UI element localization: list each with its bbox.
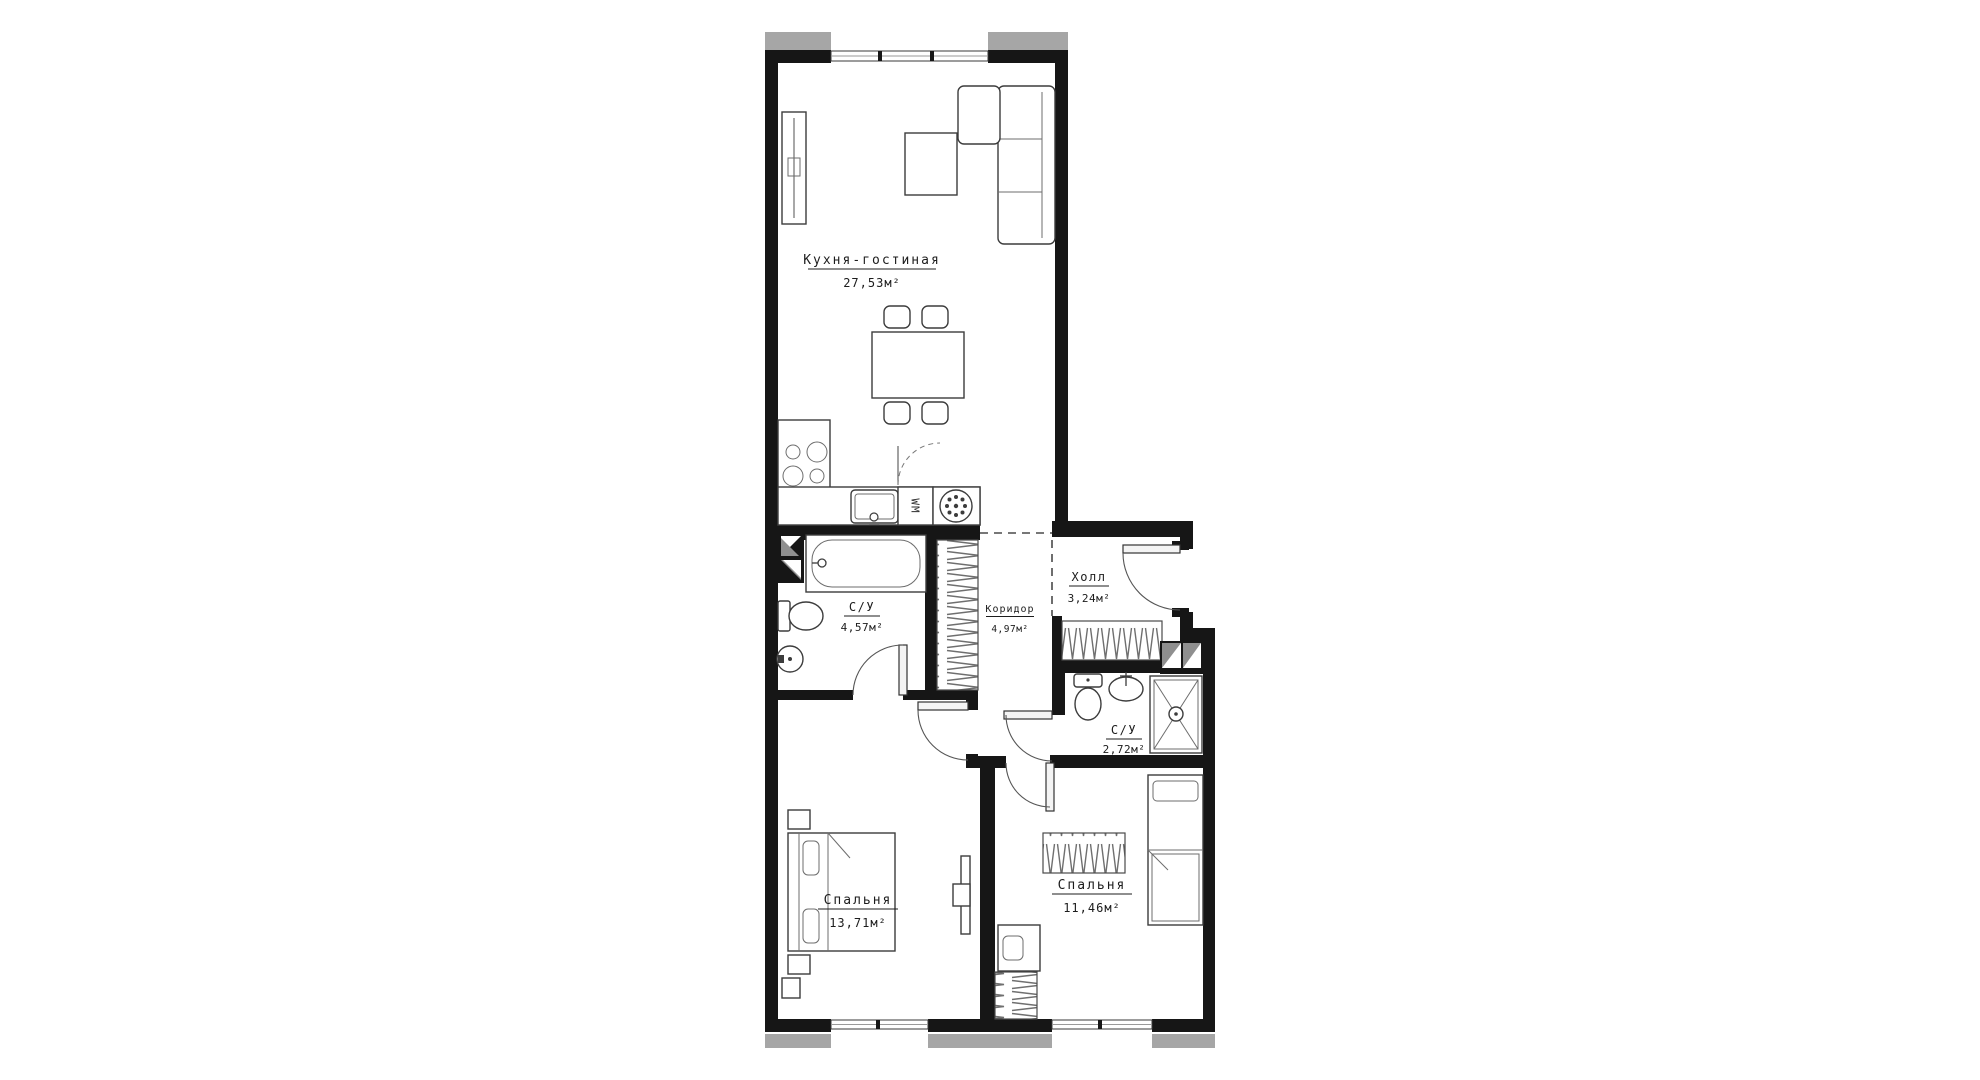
wall-segment (903, 690, 978, 700)
room-area: 4,57м² (841, 621, 884, 634)
room-name: С/У (1111, 723, 1137, 737)
floor-plan: WM (0, 0, 1980, 1080)
sofa-icon (958, 86, 1055, 244)
washing-machine-label: WM (909, 498, 922, 513)
hob-icon (933, 487, 980, 525)
chair-icon (884, 402, 910, 424)
room-area: 3,24м² (1068, 592, 1111, 605)
sink-icon (851, 490, 898, 525)
wall-segment (928, 1019, 1052, 1032)
hall-wardrobe-hatch (1062, 621, 1162, 660)
bathroom1-door (853, 645, 907, 695)
wall-segment (765, 50, 831, 63)
wall-segment (1055, 50, 1068, 525)
bathroom2-door (1004, 711, 1052, 761)
chair-icon (922, 402, 948, 424)
sofa-chaise (958, 86, 1000, 144)
room-label-kitchen: Кухня-гостиная 27,53м² (803, 253, 941, 290)
washbasin-icon (1109, 672, 1143, 701)
coffee-table-icon (905, 133, 957, 195)
bathtub-icon (806, 535, 926, 592)
slab-bottom-left (765, 1034, 831, 1048)
room-name: Кухня-гостиная (803, 253, 941, 268)
room-label-hall: Холл 3,24м² (1068, 570, 1111, 605)
wall-segment (1052, 521, 1193, 537)
wall-segment (1052, 660, 1162, 673)
bathroom2-fixtures (1074, 672, 1202, 753)
corridor-wardrobe-hatch (937, 540, 978, 690)
kitchen-counter: WM (778, 420, 980, 525)
wall-segment (1203, 630, 1215, 1032)
window (831, 51, 988, 61)
slab-bottom-middle (928, 1034, 1052, 1048)
chair-icon (922, 306, 948, 328)
nightstand-icon (788, 955, 810, 974)
room-name: С/У (849, 600, 875, 614)
room-area: 11,46м² (1063, 901, 1121, 915)
bedroom2-door (1006, 763, 1054, 811)
room-name: Коридор (985, 604, 1034, 615)
toilet-icon (1074, 674, 1102, 720)
cabinet-icon (782, 112, 806, 224)
washing-machine-icon: WM (898, 487, 933, 525)
wall-segment (778, 690, 853, 700)
double-bed-icon (788, 833, 895, 951)
bedroom2-wardrobe-hatch (1043, 833, 1125, 873)
kitchen-fixtures: WM (778, 86, 1055, 525)
room-area: 2,72м² (1103, 743, 1146, 756)
room-area: 27,53м² (843, 276, 901, 290)
slab-top-right (988, 32, 1068, 50)
slab-bottom-right (1152, 1034, 1215, 1048)
room-name: Холл (1072, 570, 1107, 584)
slab-top-left (765, 32, 831, 50)
stool-icon (782, 978, 800, 998)
bedroom2-closet-hatch (995, 972, 1037, 1019)
bedroom1-door (918, 702, 968, 760)
wall-segment (1052, 616, 1062, 660)
wall-segment (765, 1019, 831, 1032)
room-name: Спальня (1058, 878, 1127, 893)
toilet-icon (778, 601, 823, 631)
washbasin-icon (777, 646, 803, 672)
window (1052, 1020, 1152, 1029)
dining-set (872, 306, 964, 424)
entrance-door (1123, 545, 1180, 610)
kitchen-appliance-swing (898, 443, 940, 485)
dining-table-icon (872, 332, 964, 398)
room-label-bathroom2: С/У 2,72м² (1103, 723, 1146, 756)
vent-shaft-icon (778, 533, 804, 583)
desk-icon (998, 925, 1040, 971)
wall-segment (980, 766, 995, 1019)
room-label-bathroom1: С/У 4,57м² (841, 600, 884, 634)
chair-icon (884, 306, 910, 328)
wall-segment (765, 50, 778, 1032)
room-label-corridor: Коридор 4,97м² (985, 604, 1034, 635)
tv-unit-icon (953, 856, 970, 934)
room-label-bedroom2: Спальня 11,46м² (1052, 878, 1132, 915)
room-area: 4,97м² (991, 624, 1028, 635)
window (831, 1020, 928, 1029)
room-name: Спальня (824, 893, 893, 908)
wall-segment (1050, 755, 1203, 768)
room-area: 13,71м² (829, 916, 887, 930)
wall-segment (925, 540, 937, 690)
wall-segment (1152, 1019, 1215, 1032)
single-bed-icon (1148, 775, 1203, 925)
shower-icon (1150, 676, 1202, 753)
nightstand-icon (788, 810, 810, 829)
vent-shaft-icon (1160, 641, 1203, 670)
